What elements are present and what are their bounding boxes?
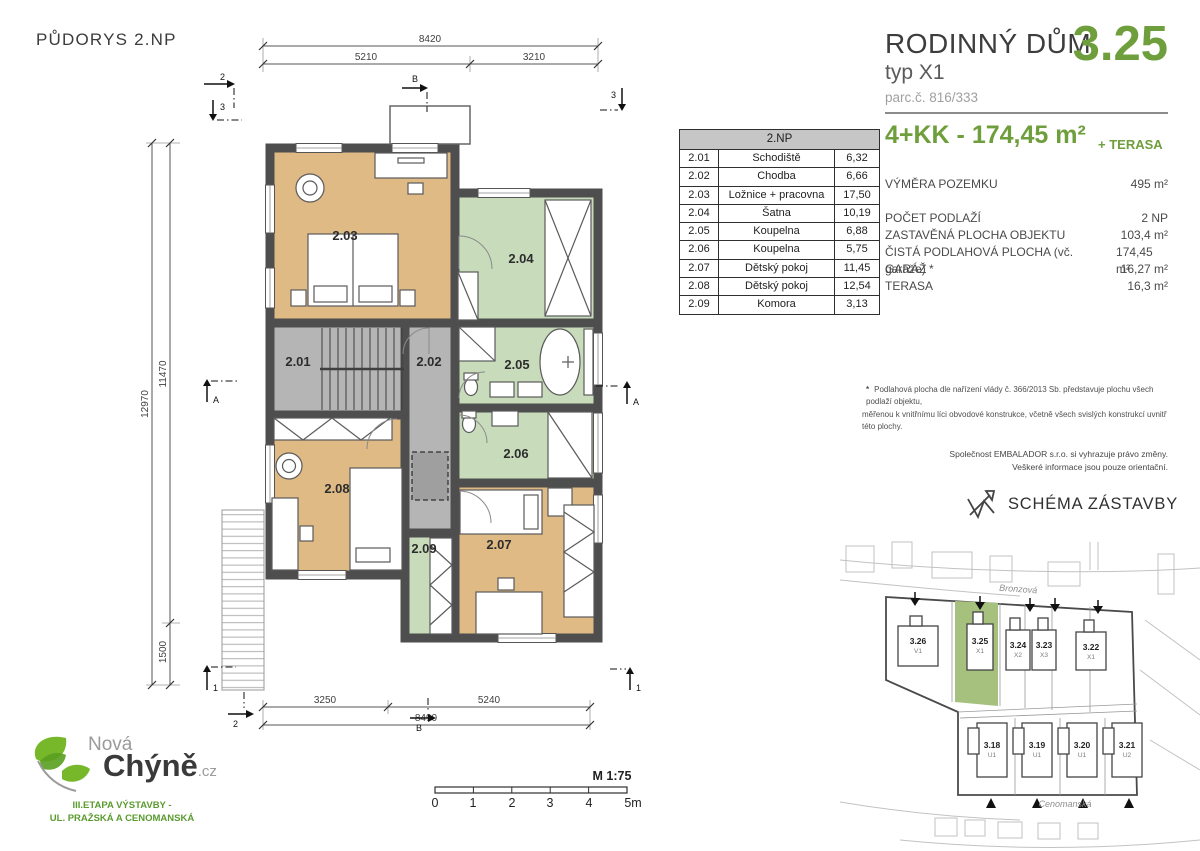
room-area: 12,54 (835, 278, 879, 295)
spec-row: ZASTAVĚNÁ PLOCHA OBJEKTU103,4 m² (885, 227, 1168, 244)
ceiling-hatch (412, 452, 448, 500)
room-label: 2.02 (416, 354, 441, 369)
specs-list: VÝMĚRA POZEMKU495 m² POČET PODLAŽÍ2 NP Z… (885, 176, 1168, 295)
plot-type: U1 (1078, 752, 1087, 759)
street-name-top: Bronzová (999, 583, 1038, 596)
table-row: 2.01Schodiště6,32 (680, 150, 879, 168)
plot-type: V1 (914, 648, 922, 655)
site-plan: 3.26 V1 3.25 X1 3.24 X2 3.23 X3 3.22 X1 … (840, 540, 1200, 851)
spec-label: ČISTÁ PODLAHOVÁ PLOCHA (vč. garáže) * (885, 244, 1116, 261)
plot-type: X1 (1087, 654, 1095, 661)
dim-label: 11470 (158, 360, 169, 388)
spec-label: POČET PODLAŽÍ (885, 210, 981, 227)
scale-tick: 0 (432, 796, 439, 810)
desk (375, 153, 447, 178)
room-label: 2.04 (508, 251, 534, 266)
spec-value: 2 NP (1141, 210, 1168, 227)
spec-label: TERASA (885, 278, 933, 295)
street-name-bottom: Cenomanská (1038, 799, 1091, 809)
dim-label: 3210 (523, 52, 546, 63)
room-label: 2.01 (285, 354, 310, 369)
room-area: 6,32 (835, 150, 879, 167)
roof-protrusion (390, 106, 470, 144)
section-marker-label: 2 (220, 72, 225, 82)
room-name: Komora (719, 296, 835, 313)
logo-tagline: III.ETAPA VÝSTAVBY - UL. PRAŽSKÁ A CENOM… (22, 799, 222, 825)
section-marker-label: 3 (220, 102, 225, 112)
room-label: 2.05 (504, 357, 529, 372)
footnote-line: *Podlahová plocha dle nařízení vlády č. … (862, 384, 1168, 409)
spec-label: ZASTAVĚNÁ PLOCHA OBJEKTU (885, 227, 1065, 244)
terrace-note: + TERASA (1098, 137, 1163, 152)
room-name: Koupelna (719, 223, 835, 240)
scale-tick: 5m (624, 796, 641, 810)
spec-row: VÝMĚRA POZEMKU495 m² (885, 176, 1168, 193)
table-row: 2.09Komora3,13 (680, 296, 879, 313)
room-name: Šatna (719, 205, 835, 222)
plot-type: X1 (976, 648, 984, 655)
logo-tld: .cz (198, 763, 217, 780)
spec-label: VÝMĚRA POZEMKU (885, 176, 998, 193)
section-marker-label: B (412, 74, 418, 84)
room-area: 10,19 (835, 205, 879, 222)
plot-id: 3.21 (1119, 740, 1136, 750)
tagline-line: III.ETAPA VÝSTAVBY - (22, 799, 222, 812)
room-id: 2.02 (680, 168, 719, 185)
room-id: 2.09 (680, 296, 719, 313)
spec-row: POČET PODLAŽÍ2 NP (885, 210, 1168, 227)
room-label: 2.08 (324, 481, 349, 496)
spec-row: TERASA16,3 m² (885, 278, 1168, 295)
house-3-23 (1032, 630, 1056, 670)
plot-type: U1 (988, 752, 997, 759)
desk (476, 592, 542, 634)
table-row: 2.08Dětský pokoj12,54 (680, 278, 879, 296)
section-marker-label: A (633, 397, 639, 407)
room-area: 6,66 (835, 168, 879, 185)
spec-value: 16,3 m² (1127, 278, 1168, 295)
room-table: 2.NP 2.01Schodiště6,32 2.02Chodba6,66 2.… (679, 129, 880, 315)
spec-value: 495 m² (1131, 176, 1168, 193)
house-3-24 (1006, 630, 1030, 670)
plot-type: X3 (1040, 652, 1048, 659)
section-marker-label: 1 (636, 683, 641, 693)
house-type: typ X1 (885, 61, 945, 85)
divider (885, 112, 1168, 114)
plot-type: X2 (1014, 652, 1022, 659)
sink (518, 382, 542, 397)
dim-label: 1500 (158, 640, 169, 663)
plot-id: 3.25 (972, 636, 989, 646)
house-3-25 (967, 624, 993, 670)
table-row: 2.03Ložnice + pracovna17,50 (680, 187, 879, 205)
spec-value: 174,45 m² (1116, 244, 1168, 261)
room-name: Ložnice + pracovna (719, 187, 835, 204)
room-label: 2.09 (411, 541, 436, 556)
section-marker-label: 3 (611, 90, 616, 100)
unit-number: 3.25 (1040, 20, 1168, 69)
room-area: 11,45 (835, 260, 879, 277)
room-name: Chodba (719, 168, 835, 185)
dim-label: 8420 (419, 34, 442, 45)
table-row: 2.05Koupelna6,88 (680, 223, 879, 241)
spec-value: 16,27 m² (1121, 261, 1168, 278)
plot-id: 3.20 (1074, 740, 1091, 750)
asterisk: * (866, 385, 869, 394)
dim-label: 5240 (478, 695, 501, 706)
house-3-20 (1067, 723, 1097, 777)
room-id: 2.06 (680, 241, 719, 258)
floor-plan-drawing: 2.01 2.02 2.03 2.04 2.05 2.06 2.07 2.08 … (0, 0, 700, 851)
spec-value: 103,4 m² (1121, 227, 1168, 244)
plot-id: 3.24 (1010, 640, 1027, 650)
sink (492, 411, 518, 426)
plot-id: 3.19 (1029, 740, 1046, 750)
room-area: 17,50 (835, 187, 879, 204)
room-name: Schodiště (719, 150, 835, 167)
house-3-26 (898, 626, 938, 666)
table-row: 2.07Dětský pokoj11,45 (680, 260, 879, 278)
plot-id: 3.18 (984, 740, 1001, 750)
north-arrow-icon (963, 486, 999, 522)
dim-label: 5210 (355, 52, 378, 63)
scale-tick: 3 (547, 796, 554, 810)
scale-label: M 1:75 (593, 769, 632, 783)
company-note: Společnost EMBALADOR s.r.o. si vyhrazuje… (862, 448, 1168, 475)
logo-brand-main: Chýně.cz (103, 750, 217, 781)
section-marker-label: A (213, 395, 219, 405)
parcel-number: parc.č. 816/333 (885, 90, 978, 105)
section-marker-label: B (416, 723, 422, 733)
plot-id: 3.26 (910, 636, 927, 646)
room-id: 2.07 (680, 260, 719, 277)
spacer (885, 193, 1168, 210)
footnote-line: měřenou k vnitřnímu líci obvodové konstr… (862, 409, 1168, 434)
scale-bar: M 1:75 0 1 2 3 4 5m (432, 769, 642, 810)
room-label: 2.03 (332, 228, 357, 243)
spec-row: ČISTÁ PODLAHOVÁ PLOCHA (vč. garáže) *174… (885, 244, 1168, 261)
table-row: 2.02Chodba6,66 (680, 168, 879, 186)
table-row: 2.04Šatna10,19 (680, 205, 879, 223)
room-area: 5,75 (835, 241, 879, 258)
company-line: Veškeré informace jsou pouze orientační. (862, 461, 1168, 475)
room-table-header: 2.NP (680, 130, 879, 150)
footnote: *Podlahová plocha dle nařízení vlády č. … (862, 384, 1168, 475)
house-3-19 (1022, 723, 1052, 777)
room-id: 2.05 (680, 223, 719, 240)
dim-label: 3250 (314, 695, 337, 706)
house-3-21 (1112, 723, 1142, 777)
table-row: 2.06Koupelna5,75 (680, 241, 879, 259)
disposition: 4+KK - 174,45 m² (885, 121, 1086, 150)
tagline-line: UL. PRAŽSKÁ A CENOMANSKÁ (22, 812, 222, 825)
room-id: 2.03 (680, 187, 719, 204)
plot-id: 3.23 (1036, 640, 1053, 650)
footnote-text: Podlahová plocha dle nařízení vlády č. 3… (866, 385, 1153, 406)
scale-tick: 1 (470, 796, 477, 810)
plot-id: 3.22 (1083, 642, 1100, 652)
room-area: 3,13 (835, 296, 879, 313)
dim-label: 12970 (140, 390, 151, 418)
desk (272, 498, 298, 570)
room-area: 6,88 (835, 223, 879, 240)
toilet (465, 379, 478, 396)
sink (490, 382, 514, 397)
room-name: Koupelna (719, 241, 835, 258)
datasheet-page: PŮDORYS 2.NP (0, 0, 1200, 851)
room-id: 2.04 (680, 205, 719, 222)
scale-tick: 2 (509, 796, 516, 810)
terrace (222, 510, 264, 690)
room-name: Dětský pokoj (719, 260, 835, 277)
house-3-18 (977, 723, 1007, 777)
room-label: 2.06 (503, 446, 528, 461)
scale-tick: 4 (586, 796, 593, 810)
plot-type: U1 (1033, 752, 1042, 759)
room-label: 2.07 (486, 537, 511, 552)
plot-type: U2 (1123, 752, 1132, 759)
room-name: Dětský pokoj (719, 278, 835, 295)
logo-brand-text: Chýně (103, 748, 198, 783)
room-id: 2.01 (680, 150, 719, 167)
section-marker-label: 1 (213, 683, 218, 693)
spec-label: GARÁŽ (885, 261, 926, 278)
schema-title: SCHÉMA ZÁSTAVBY (1008, 495, 1178, 514)
room-id: 2.08 (680, 278, 719, 295)
section-marker-label: 2 (233, 719, 238, 729)
company-line: Společnost EMBALADOR s.r.o. si vyhrazuje… (862, 448, 1168, 462)
